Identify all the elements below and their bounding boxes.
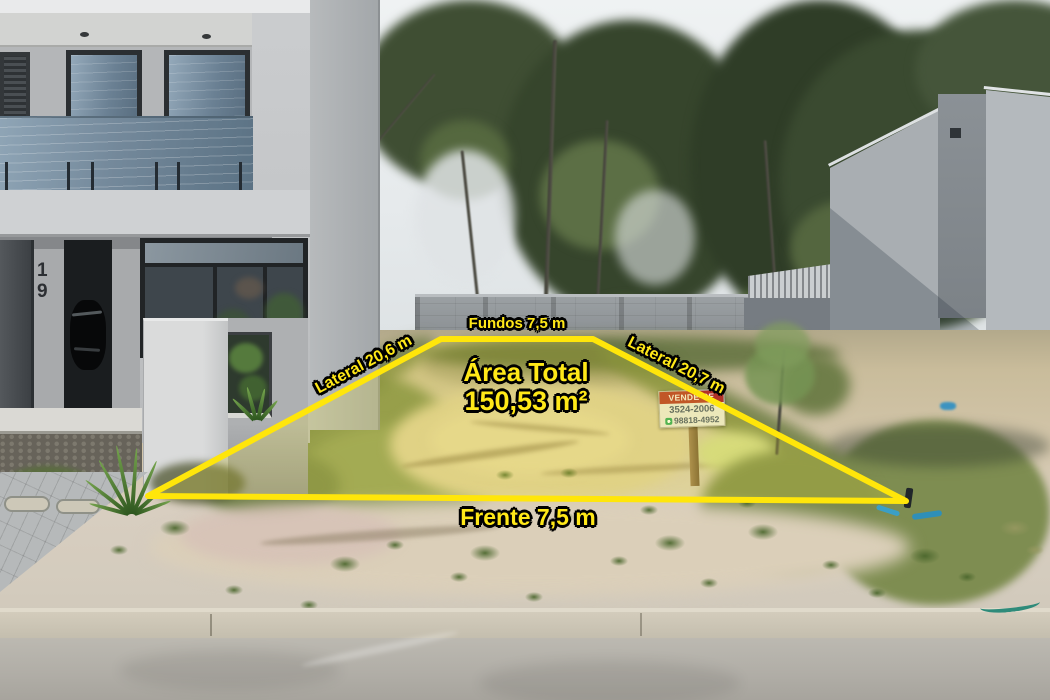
- yucca-plant: [84, 414, 174, 514]
- curb-crack: [640, 613, 642, 636]
- balcony-ceiling: [0, 13, 252, 47]
- label-fundos: Fundos 7,5 m: [469, 315, 566, 332]
- vende-se-sign: VENDE-SE 3524-2006 98818-4952: [658, 387, 730, 495]
- sign-post: [688, 424, 699, 486]
- balcony-window: [66, 50, 142, 126]
- weed: [640, 505, 658, 515]
- weed: [655, 535, 685, 551]
- recessed-light: [80, 32, 89, 37]
- weed: [496, 470, 514, 480]
- sapling-foliage: [755, 322, 810, 367]
- reflection-warm: [235, 277, 263, 299]
- louver-shutter: [0, 52, 30, 124]
- railing-post: [239, 162, 242, 190]
- label-area-total: Área Total 150,53 m²: [463, 358, 588, 416]
- sky-gap: [615, 190, 695, 285]
- plant-reflection: [229, 343, 263, 373]
- left-house: 19: [0, 0, 380, 600]
- fascia: [0, 0, 310, 13]
- drain-cover: [4, 496, 50, 512]
- railing-post: [5, 162, 8, 190]
- recessed-light: [202, 34, 211, 39]
- weed: [610, 556, 628, 566]
- weed: [738, 498, 756, 508]
- weed: [386, 540, 404, 550]
- right-building-recess: [938, 94, 992, 318]
- railing-post: [155, 162, 158, 190]
- weed: [525, 592, 543, 602]
- curb: [0, 612, 1050, 638]
- floor-slab: [0, 190, 310, 237]
- weed: [700, 578, 718, 588]
- small-plant: [230, 378, 284, 420]
- house-number: 19: [37, 260, 51, 302]
- door-sidelight: [64, 240, 112, 420]
- lot-for-sale-photo: 19: [0, 0, 1050, 700]
- weed: [560, 468, 578, 478]
- label-area-value: 150,53 m²: [463, 386, 588, 416]
- curb-crack: [210, 614, 212, 636]
- window-transom: [145, 243, 303, 267]
- railing-post: [177, 162, 180, 190]
- weed: [958, 572, 976, 582]
- railing-post: [91, 162, 94, 190]
- balcony-window: [164, 50, 250, 126]
- weed: [868, 588, 886, 598]
- street-stain: [480, 660, 740, 700]
- street-stain: [120, 650, 340, 690]
- sign-phone-number: 98818-4952: [674, 414, 720, 426]
- railing-post: [67, 162, 70, 190]
- label-area-title: Área Total: [463, 358, 588, 386]
- weed: [822, 560, 840, 570]
- vent-opening: [950, 128, 961, 138]
- weed: [748, 524, 778, 540]
- weed: [910, 548, 940, 564]
- glass-railing: [0, 116, 253, 190]
- sign-phone-whatsapp: 98818-4952: [660, 414, 724, 427]
- weed: [1026, 545, 1044, 555]
- blue-debris: [940, 402, 956, 410]
- weed: [450, 572, 468, 582]
- weed: [1000, 520, 1030, 536]
- weed: [470, 545, 500, 561]
- entry-door: [0, 240, 34, 415]
- building-shadow-on-grass: [828, 425, 1050, 467]
- whatsapp-icon: [665, 418, 672, 425]
- label-frente: Frente 7,5 m: [460, 504, 596, 531]
